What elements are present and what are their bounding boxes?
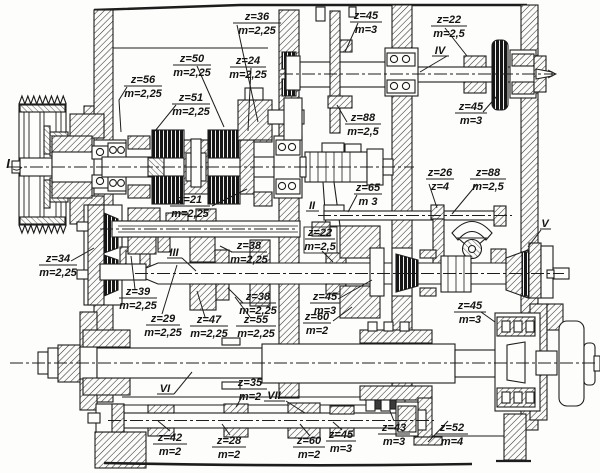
svg-text:z=38: z=38 (236, 240, 262, 252)
svg-text:z=45: z=45 (353, 10, 379, 22)
svg-text:z=22: z=22 (436, 14, 461, 26)
svg-text:m=2: m=2 (298, 449, 320, 461)
svg-text:z=88: z=88 (350, 112, 376, 124)
svg-text:m=2,25: m=2,25 (237, 328, 275, 340)
svg-text:m=3: m=3 (459, 314, 481, 326)
svg-text:m=2,25: m=2,25 (124, 88, 162, 100)
svg-text:z=50: z=50 (179, 53, 205, 65)
svg-text:m=3: m=3 (330, 443, 352, 455)
svg-text:z=39: z=39 (125, 286, 151, 298)
svg-text:z=34: z=34 (45, 253, 70, 265)
svg-text:z=52: z=52 (439, 422, 464, 434)
svg-text:z=45: z=45 (328, 429, 354, 441)
svg-text:m=2,25: m=2,25 (171, 208, 209, 220)
svg-text:I: I (6, 156, 10, 171)
svg-text:VI: VI (160, 383, 171, 395)
svg-text:z=35: z=35 (237, 377, 263, 389)
svg-text:m=2: m=2 (159, 446, 181, 458)
svg-text:II: II (309, 200, 316, 212)
svg-text:z=24: z=24 (235, 55, 260, 67)
svg-text:m=2: m=2 (239, 391, 261, 403)
svg-text:m=2,25: m=2,25 (119, 300, 157, 312)
svg-text:z=88: z=88 (475, 167, 501, 179)
svg-text:m=2,25: m=2,25 (39, 267, 77, 279)
svg-text:m=2,5: m=2,5 (433, 28, 465, 40)
svg-text:z=45: z=45 (457, 300, 483, 312)
svg-text:m=2,5: m=2,5 (347, 126, 379, 138)
svg-text:z=28: z=28 (216, 435, 242, 447)
svg-text:m=2,5: m=2,5 (304, 241, 336, 253)
svg-text:z=47: z=47 (196, 314, 222, 326)
svg-text:z=51: z=51 (178, 92, 203, 104)
svg-text:z=43: z=43 (381, 422, 406, 434)
svg-text:z=4: z=4 (430, 181, 449, 193)
svg-text:m=2,25: m=2,25 (238, 25, 276, 37)
svg-text:z=21: z=21 (177, 194, 202, 206)
svg-text:m=3: m=3 (355, 24, 377, 36)
svg-text:z=26: z=26 (427, 167, 453, 179)
svg-text:m=2,25: m=2,25 (229, 69, 267, 81)
svg-text:m=3: m=3 (383, 436, 405, 448)
svg-text:III: III (169, 247, 179, 259)
svg-text:z=56: z=56 (130, 74, 156, 86)
svg-text:z=22: z=22 (307, 227, 332, 239)
svg-text:z=36: z=36 (244, 11, 270, 23)
svg-text:z=60: z=60 (296, 435, 322, 447)
svg-text:z=65: z=65 (355, 182, 381, 194)
svg-text:m=4: m=4 (441, 436, 463, 448)
svg-text:m=2: m=2 (218, 449, 240, 461)
svg-text:z=38: z=38 (245, 291, 271, 303)
svg-text:m=2,25: m=2,25 (172, 106, 210, 118)
svg-text:z=29: z=29 (150, 313, 176, 325)
svg-text:z=60: z=60 (304, 311, 330, 323)
svg-text:m=2: m=2 (306, 325, 328, 337)
svg-text:VII: VII (267, 390, 281, 402)
svg-text:z=45: z=45 (312, 291, 338, 303)
svg-text:z=45: z=45 (458, 101, 484, 113)
svg-text:m=2,25: m=2,25 (230, 254, 268, 266)
svg-text:m 3: m 3 (359, 196, 378, 208)
svg-text:IV: IV (435, 45, 447, 57)
svg-text:m=2,25: m=2,25 (144, 327, 182, 339)
svg-text:z=42: z=42 (157, 432, 182, 444)
svg-text:z=55: z=55 (243, 314, 269, 326)
svg-text:m=2,25: m=2,25 (173, 67, 211, 79)
svg-text:m=3: m=3 (460, 115, 482, 127)
svg-text:m=2,5: m=2,5 (472, 181, 504, 193)
svg-text:m=2,25: m=2,25 (190, 328, 228, 340)
